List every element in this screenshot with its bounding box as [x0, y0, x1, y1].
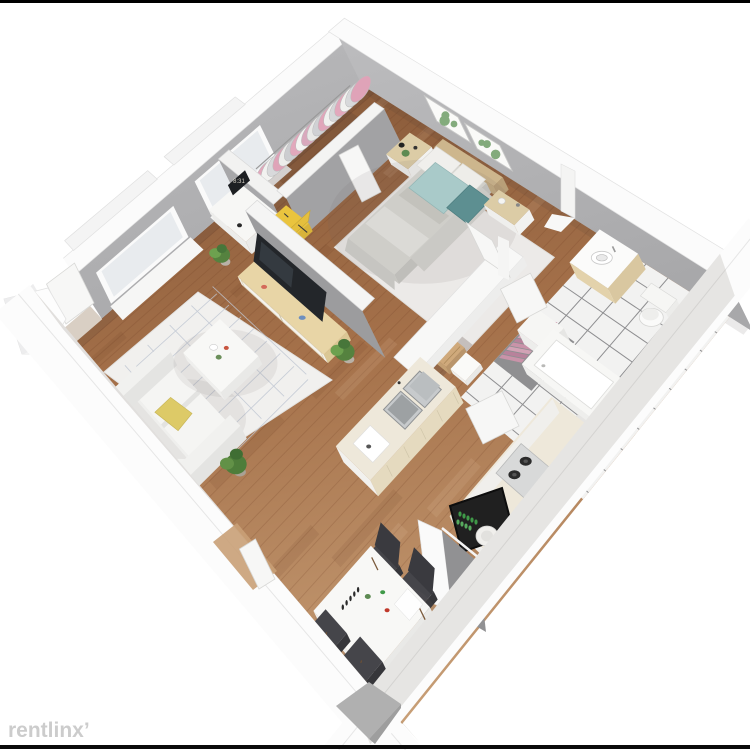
svg-text:8:31: 8:31 [233, 179, 245, 185]
